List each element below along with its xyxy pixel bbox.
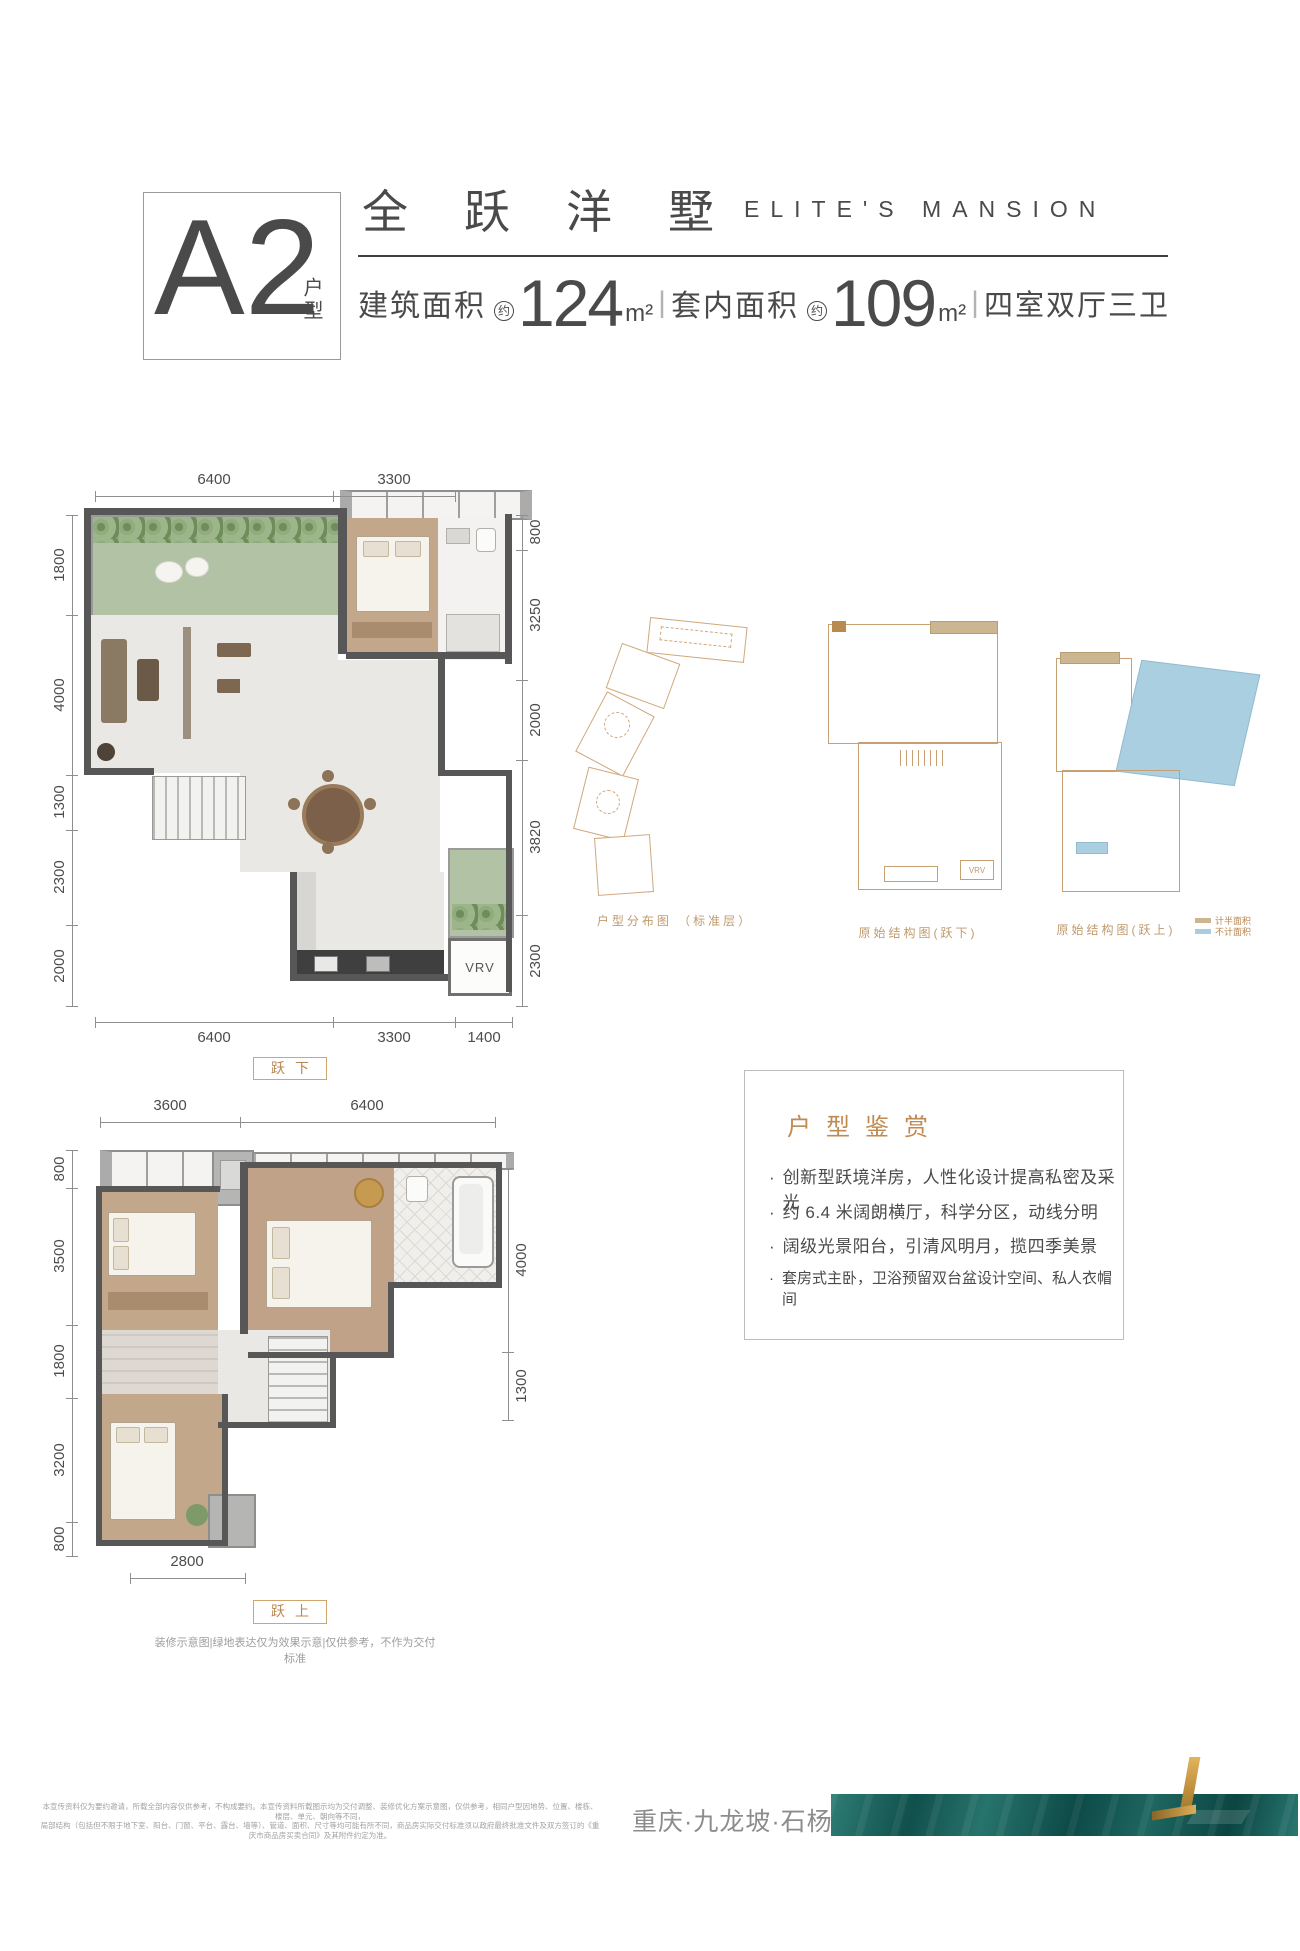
dim-label: 2000 xyxy=(52,940,68,992)
vrv-box: VRV xyxy=(448,938,512,996)
dim-tick xyxy=(95,491,96,502)
dim-label: 1800 xyxy=(52,1335,68,1387)
wall xyxy=(388,1282,394,1358)
dim-label: 800 xyxy=(528,506,544,558)
dim-label: 2300 xyxy=(528,935,544,987)
toilet xyxy=(476,528,496,552)
chair xyxy=(322,770,334,782)
pillow xyxy=(272,1227,290,1259)
area-built-unit: m² xyxy=(625,300,653,328)
approx-badge: 约 xyxy=(807,301,827,321)
bullet-marker: · xyxy=(769,1168,775,1188)
chair xyxy=(288,798,300,810)
dim-tick xyxy=(130,1573,131,1584)
wall xyxy=(338,508,347,654)
wall xyxy=(84,768,154,775)
wall xyxy=(505,514,512,664)
dim-label: 2300 xyxy=(52,851,68,903)
area-divider: | xyxy=(971,286,979,320)
dim-label: 3250 xyxy=(528,589,544,641)
dim-tick xyxy=(516,515,528,516)
structure-down-vrv: VRV xyxy=(960,860,994,880)
distribution-unit xyxy=(594,834,654,896)
feature-text: 阔级光景阳台，引清风明月，揽四季美景 xyxy=(783,1232,1098,1257)
structure-down-pillar xyxy=(832,621,846,632)
coffee-table xyxy=(137,659,159,701)
plan1-patio xyxy=(448,848,514,938)
pillow xyxy=(144,1427,168,1443)
wall xyxy=(244,1162,502,1168)
dim-tick xyxy=(100,1117,101,1128)
footer-disclaimer-line1: 本宣传资料仅为要约邀请，所载全部内容仅供参考，不构成要约。本宣传资料所载图示均为… xyxy=(40,1802,600,1821)
structure-down-balcony xyxy=(884,866,938,882)
approx-badge: 约 xyxy=(494,301,514,321)
feature-item: · 套房式主卧，卫浴预留双台盆设计空间、私人衣帽间 xyxy=(769,1267,1123,1309)
vrv-label: VRV xyxy=(969,866,985,875)
feature-text: 套房式主卧，卫浴预留双台盆设计空间、私人衣帽间 xyxy=(782,1267,1123,1309)
wall xyxy=(96,1186,102,1546)
footer-location: 重庆·九龙坡·石杨路 xyxy=(632,1802,859,1838)
structure-up-terrace-excluded xyxy=(1116,660,1261,786)
dim-label: 1300 xyxy=(52,776,68,828)
chair xyxy=(364,798,376,810)
plan1-balcony xyxy=(340,490,532,520)
wall xyxy=(84,508,91,774)
dim-tick xyxy=(516,1006,528,1007)
plant xyxy=(186,1504,208,1526)
legend-row-excluded: 不计面积 xyxy=(1195,925,1251,938)
dim-label: 3500 xyxy=(52,1230,68,1282)
wall xyxy=(496,1162,502,1288)
plant-pot xyxy=(97,743,115,761)
dim-tick xyxy=(333,491,334,502)
toilet xyxy=(406,1176,428,1202)
dim-label: 3300 xyxy=(369,1030,419,1046)
structure-down-balcony-half xyxy=(930,621,998,634)
page-title-cn: 全跃洋墅 xyxy=(362,176,770,242)
bullet-marker: · xyxy=(769,1203,775,1223)
area-built-value: 124 xyxy=(518,265,622,341)
unit-code-suffix: 户型 xyxy=(297,277,326,323)
dim-line xyxy=(95,496,455,497)
dining-table xyxy=(302,784,364,846)
stove xyxy=(366,956,390,972)
dim-line xyxy=(95,1022,512,1023)
pillow xyxy=(113,1218,129,1242)
area-inner-label: 套内面积 xyxy=(671,281,799,325)
pillow xyxy=(116,1427,140,1443)
plan2-stairs xyxy=(268,1336,328,1424)
wall xyxy=(438,659,445,775)
dim-tick xyxy=(502,1420,514,1421)
side-table xyxy=(217,643,251,657)
dim-tick xyxy=(66,615,78,616)
structure-up-excluded-small xyxy=(1076,842,1108,854)
wall xyxy=(330,1352,336,1428)
dim-tick xyxy=(516,760,528,761)
dim-line xyxy=(72,515,73,1006)
plan1-dining xyxy=(240,660,440,872)
plan2-caption: 跃上 xyxy=(253,1600,327,1624)
dim-label: 2000 xyxy=(528,694,544,746)
bed xyxy=(108,1212,196,1276)
legend-swatch-half xyxy=(1195,918,1211,923)
dim-label: 6400 xyxy=(189,1030,239,1046)
pillow xyxy=(113,1246,129,1270)
plan2-master-bedroom xyxy=(248,1168,394,1354)
dim-label: 3600 xyxy=(145,1098,195,1114)
dim-label: 6400 xyxy=(342,1098,392,1114)
dim-tick xyxy=(66,1325,78,1326)
footer-disclaimer-line2: 局部结构（包括但不限于地下室、阳台、门窗、平台、露台、墙等）、管道、面积、尺寸等… xyxy=(40,1821,600,1840)
dim-tick xyxy=(240,1117,241,1128)
plan2-closet xyxy=(100,1330,218,1394)
dim-tick xyxy=(516,680,528,681)
bullet-marker: · xyxy=(769,1270,774,1287)
unit-code-box: A2 户型 xyxy=(143,192,341,360)
area-summary: 建筑面积 约 124 m² | 套内面积 约 109 m² | 四室双厅三卫 xyxy=(358,264,1170,342)
sofa xyxy=(101,639,127,723)
diagram-caption: 原始结构图(跃上) xyxy=(1031,921,1201,938)
structure-down-upper xyxy=(828,624,998,744)
dim-tick xyxy=(516,550,528,551)
wall xyxy=(346,652,512,659)
tv-wall xyxy=(183,627,191,739)
bed xyxy=(110,1422,176,1520)
area-inner-value: 109 xyxy=(831,265,935,341)
sink xyxy=(446,528,470,544)
wall xyxy=(96,1186,220,1192)
area-built-label: 建筑面积 xyxy=(358,281,486,325)
dim-label: 800 xyxy=(52,1513,68,1565)
feature-item: · 阔级光景阳台，引清风明月，揽四季美景 xyxy=(769,1232,1098,1257)
wall xyxy=(240,1162,248,1334)
feature-text: 约 6.4 米阔朗横厅，科学分区，动线分明 xyxy=(783,1198,1099,1223)
structure-down-stairs xyxy=(900,750,948,766)
area-inner-unit: m² xyxy=(938,300,966,328)
plan1-bathroom xyxy=(438,518,508,660)
dim-label: 4000 xyxy=(52,669,68,721)
dim-tick xyxy=(66,925,78,926)
plan1-stairs xyxy=(152,776,246,840)
dim-tick xyxy=(245,1573,246,1584)
bathtub-inner xyxy=(459,1184,483,1254)
room-config: 四室双厅三卫 xyxy=(984,282,1170,324)
dim-tick xyxy=(66,1006,78,1007)
dim-tick xyxy=(66,515,78,516)
pillow xyxy=(395,541,421,557)
pillow xyxy=(272,1267,290,1299)
area-built: 建筑面积 约 124 m² xyxy=(358,265,653,341)
dim-label: 2800 xyxy=(162,1554,212,1570)
plan1-caption: 跃下 xyxy=(253,1057,327,1080)
rug xyxy=(354,1178,384,1208)
patio-plants xyxy=(452,904,506,930)
structure-up-balcony-half xyxy=(1060,652,1120,664)
dim-tick xyxy=(95,1017,96,1028)
bullet-marker: · xyxy=(769,1237,775,1257)
wall xyxy=(96,1540,228,1546)
dim-tick xyxy=(502,1352,514,1353)
dim-tick xyxy=(502,1168,514,1169)
wall xyxy=(506,770,512,992)
dim-line xyxy=(130,1578,245,1579)
dim-label: 3300 xyxy=(369,472,419,488)
wall xyxy=(438,770,512,776)
vrv-label: VRV xyxy=(465,960,495,975)
legend-label: 不计面积 xyxy=(1215,925,1251,938)
dim-tick xyxy=(66,1398,78,1399)
area-divider: | xyxy=(658,286,666,320)
page-title-en: ELITE'S MANSION xyxy=(744,196,1106,223)
area-inner: 套内面积 约 109 m² xyxy=(671,265,966,341)
kitchen-sink xyxy=(314,956,338,972)
dim-label: 800 xyxy=(52,1143,68,1195)
wall xyxy=(290,974,448,981)
dim-line xyxy=(508,1168,509,1420)
brand-watermark xyxy=(1187,1810,1251,1824)
distribution-courtyard xyxy=(596,790,620,814)
dim-label: 6400 xyxy=(189,472,239,488)
dim-label: 1400 xyxy=(459,1030,509,1046)
chair xyxy=(322,842,334,854)
brochure-page: A2 户型 全跃洋墅 ELITE'S MANSION 建筑面积 约 124 m²… xyxy=(0,0,1300,1951)
pillow xyxy=(363,541,389,557)
plan1-garden-plants xyxy=(93,517,340,543)
plan1-kitchen xyxy=(296,872,444,976)
dim-label: 3820 xyxy=(528,811,544,863)
plan-note: 装修示意图|绿地表达仅为效果示意|仅供参考，不作为交付标准 xyxy=(150,1634,440,1666)
unit-code: A2 xyxy=(154,167,320,367)
wardrobe xyxy=(352,622,432,638)
structure-up-lower xyxy=(1062,770,1180,892)
diagram-caption: 户型分布图 （标准层） xyxy=(590,912,760,929)
garden-stone xyxy=(185,557,209,577)
dim-tick xyxy=(495,1117,496,1128)
legend-swatch-excluded xyxy=(1195,929,1211,934)
dim-tick xyxy=(512,1017,513,1028)
bed xyxy=(356,536,430,612)
features-title: 户型鉴赏 xyxy=(787,1107,943,1142)
garden-stone xyxy=(155,561,183,583)
wall xyxy=(222,1394,228,1546)
bed xyxy=(266,1220,372,1308)
features-box: 户型鉴赏 · 创新型跃境洋房，人性化设计提高私密及采光 · 约 6.4 米阔朗横… xyxy=(744,1070,1124,1340)
wall xyxy=(248,1352,394,1358)
plan1-garden xyxy=(91,515,342,619)
feature-item: · 约 6.4 米阔朗横厅，科学分区，动线分明 xyxy=(769,1198,1098,1223)
wardrobe xyxy=(108,1292,208,1310)
dim-tick xyxy=(455,491,456,502)
dim-label: 3200 xyxy=(52,1434,68,1486)
dim-line xyxy=(100,1122,495,1123)
dim-tick xyxy=(333,1017,334,1028)
kitchen-cabinet xyxy=(296,872,316,950)
dim-label: 1800 xyxy=(52,539,68,591)
plan1-bedroom xyxy=(346,518,438,652)
dim-tick xyxy=(516,915,528,916)
brand-bar xyxy=(831,1794,1298,1836)
bathtub xyxy=(452,1176,494,1268)
plan2-bedroom2 xyxy=(100,1192,218,1330)
dim-line xyxy=(72,1150,73,1556)
dim-label: 1300 xyxy=(514,1360,530,1412)
wall xyxy=(218,1422,336,1428)
wall xyxy=(394,1282,502,1288)
diagram-caption: 原始结构图(跃下) xyxy=(833,924,1003,941)
dim-tick xyxy=(455,1017,456,1028)
header-rule xyxy=(358,255,1168,257)
footer-disclaimer: 本宣传资料仅为要约邀请，所载全部内容仅供参考，不构成要约。本宣传资料所载图示均为… xyxy=(40,1802,600,1840)
dim-label: 4000 xyxy=(514,1234,530,1286)
wall xyxy=(290,872,297,976)
wall xyxy=(84,508,344,515)
shower xyxy=(446,614,500,652)
dim-tick xyxy=(66,830,78,831)
plan2-master-bath xyxy=(394,1168,498,1286)
